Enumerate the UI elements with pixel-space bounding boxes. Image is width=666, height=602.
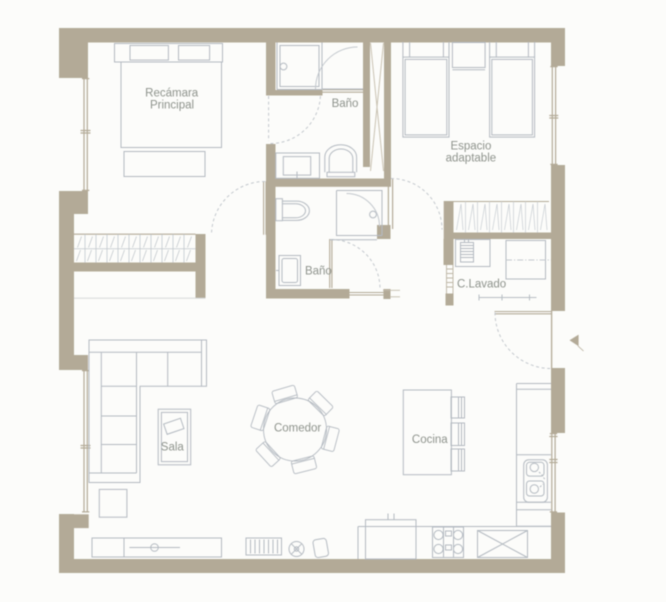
svg-text:Cocina: Cocina — [412, 434, 448, 446]
svg-text:Principal: Principal — [150, 100, 194, 112]
svg-text:Espacio: Espacio — [450, 141, 491, 153]
svg-text:Comedor: Comedor — [274, 423, 321, 435]
svg-text:Recámara: Recámara — [145, 88, 199, 100]
svg-text:adaptable: adaptable — [446, 153, 497, 165]
svg-text:C.Lavado: C.Lavado — [457, 279, 506, 291]
svg-text:Baño: Baño — [332, 98, 359, 110]
svg-text:Baño: Baño — [305, 265, 332, 277]
svg-text:Sala: Sala — [161, 441, 185, 453]
